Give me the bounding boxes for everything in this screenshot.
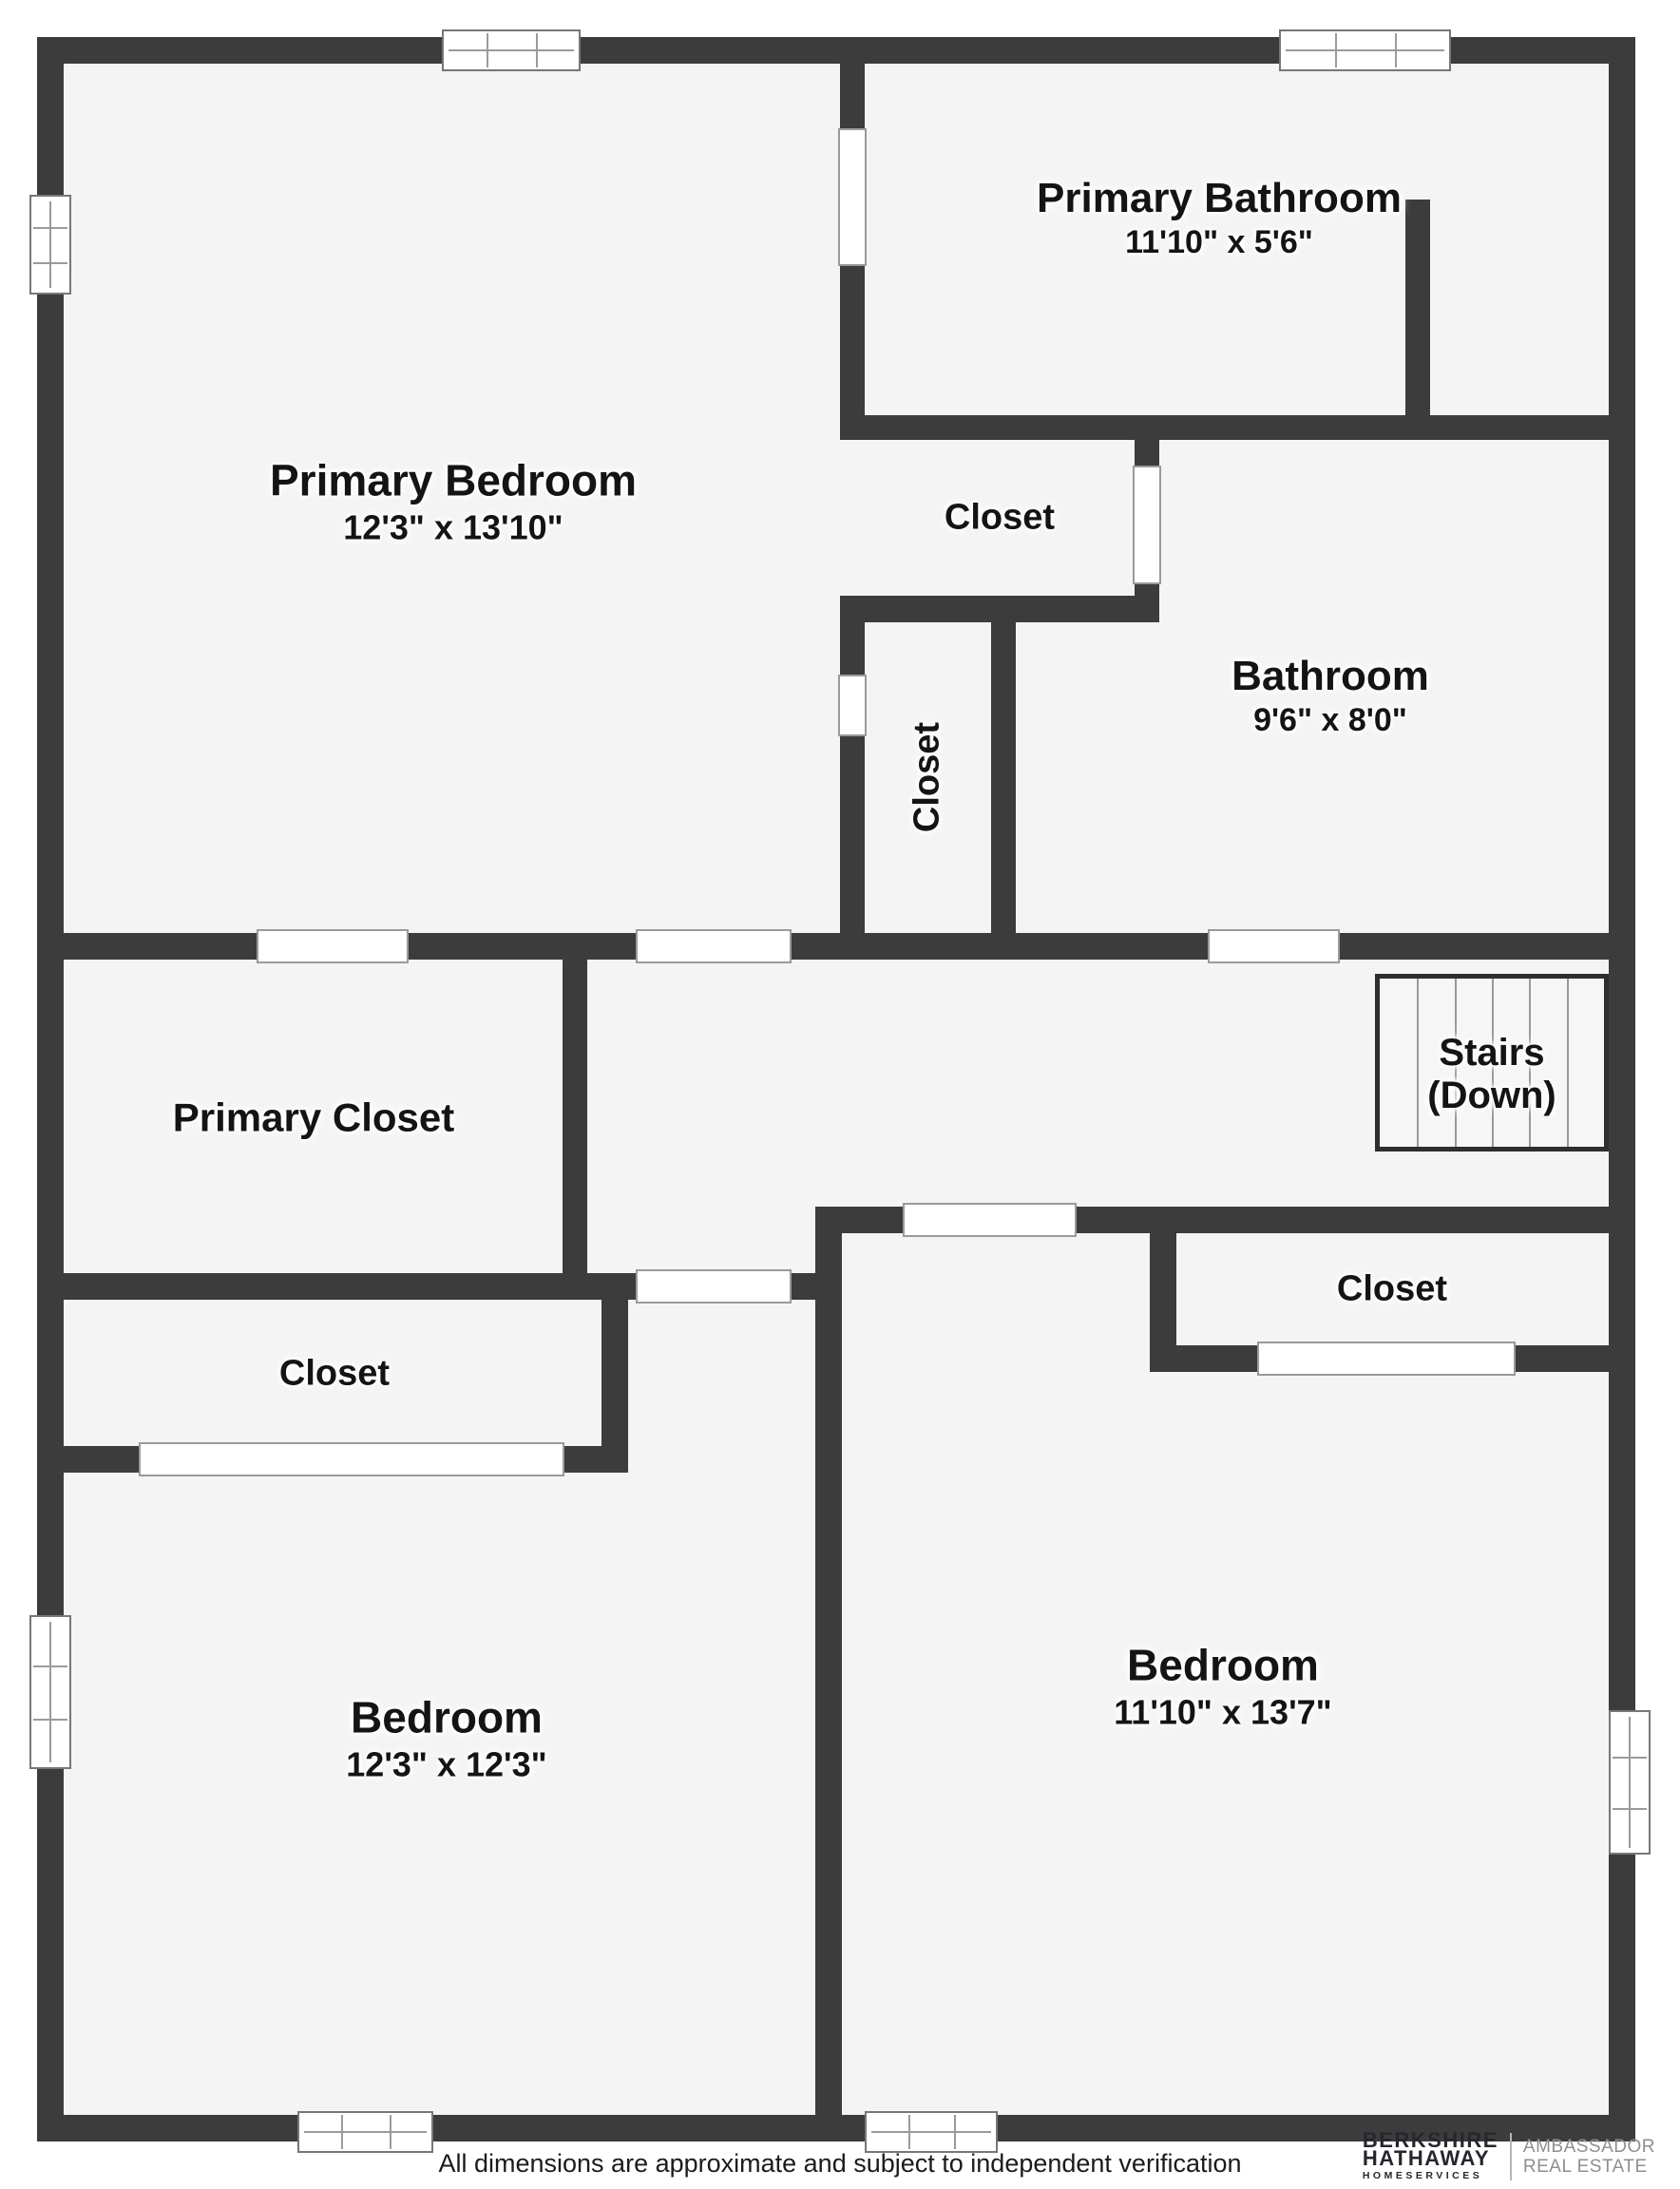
room-label-closet: Closet — [945, 498, 1055, 539]
wall-segment — [64, 1273, 636, 1300]
door-opening — [1257, 1342, 1516, 1376]
door-opening — [1133, 466, 1161, 584]
window-midline — [1629, 1717, 1631, 1848]
wall-segment — [1135, 440, 1159, 466]
door-opening — [1208, 929, 1340, 963]
room-label-primary-bathroom: Primary Bathroom11'10" x 5'6" — [1037, 175, 1402, 260]
brand-name-line2: HATHAWAY — [1363, 2149, 1499, 2167]
window — [1609, 1710, 1651, 1855]
floorplan: Primary Bedroom12'3" x 13'10"Primary Bat… — [0, 0, 1680, 2189]
room-label-primary-closet: Primary Closet — [173, 1094, 454, 1139]
window-tick — [1395, 33, 1397, 67]
stair-tread — [1417, 979, 1419, 1147]
room-label-bedroom: Bedroom11'10" x 13'7" — [1114, 1642, 1331, 1732]
wall-segment — [840, 415, 1609, 440]
window-midline — [449, 49, 574, 51]
wall-segment — [840, 64, 865, 128]
brand-right-line2: REAL ESTATE — [1523, 2157, 1655, 2177]
door-opening — [838, 675, 867, 736]
brand-name-line3: HOMESERVICES — [1363, 2170, 1499, 2181]
wall-segment — [815, 1207, 842, 2115]
room-label-primary-bedroom: Primary Bedroom12'3" x 13'10" — [270, 457, 637, 547]
room-name-line2: (Down) — [1427, 1075, 1556, 1117]
room-label-closet: Closet — [279, 1354, 390, 1395]
room-name: Closet — [945, 498, 1055, 539]
wall-segment — [840, 622, 865, 675]
window-midline — [49, 1622, 51, 1762]
window-midline — [871, 2131, 991, 2133]
window — [29, 1615, 71, 1769]
room-dims: 12'3" x 13'10" — [270, 508, 637, 546]
door-opening — [636, 929, 792, 963]
room-name: Bedroom — [1114, 1642, 1331, 1691]
logo-divider — [1510, 2133, 1512, 2180]
window-tick — [33, 1666, 67, 1667]
wall-segment — [840, 736, 865, 960]
wall-segment — [1340, 933, 1609, 960]
wall-segment — [64, 933, 257, 960]
room-name: Bedroom — [346, 1694, 546, 1743]
window-tick — [390, 2115, 391, 2149]
window-tick — [1613, 1757, 1647, 1759]
floorplan-page: Primary Bedroom12'3" x 13'10"Primary Bat… — [0, 0, 1680, 2189]
brand-logo-right: AMBASSADOR REAL ESTATE — [1523, 2137, 1655, 2177]
window-midline — [1286, 49, 1444, 51]
wall-segment — [1077, 1207, 1609, 1233]
door-opening — [257, 929, 409, 963]
brand-logo-left: BERKSHIRE HATHAWAY HOMESERVICES — [1363, 2131, 1499, 2181]
room-dims: 11'10" x 13'7" — [1114, 1693, 1331, 1731]
window-tick — [536, 33, 538, 67]
door-opening — [903, 1203, 1077, 1237]
room-name: Primary Bedroom — [270, 457, 637, 506]
wall-segment — [409, 933, 636, 960]
window-tick — [908, 2115, 910, 2149]
stair-tread — [1567, 979, 1569, 1147]
window-tick — [341, 2115, 343, 2149]
wall-segment — [564, 1446, 628, 1473]
room-name: Closet — [279, 1354, 390, 1395]
wall-segment — [563, 960, 587, 1300]
window-tick — [954, 2115, 956, 2149]
window — [865, 2111, 998, 2153]
window — [442, 29, 581, 71]
room-label-bathroom: Bathroom9'6" x 8'0" — [1231, 653, 1429, 738]
window — [1279, 29, 1451, 71]
window — [29, 195, 71, 295]
wall-segment — [840, 596, 1159, 622]
window-tick — [487, 33, 488, 67]
room-name: Primary Closet — [173, 1094, 454, 1139]
window-tick — [33, 262, 67, 264]
window-midline — [304, 2131, 427, 2133]
window-tick — [1335, 33, 1337, 67]
wall-segment — [840, 266, 865, 440]
door-opening — [139, 1442, 564, 1476]
window-midline — [49, 201, 51, 288]
brand-logo: BERKSHIRE HATHAWAY HOMESERVICES AMBASSAD… — [1363, 2131, 1655, 2181]
room-name: Stairs — [1427, 1032, 1556, 1075]
room-label-bedroom: Bedroom12'3" x 12'3" — [346, 1694, 546, 1784]
window-tick — [33, 1719, 67, 1721]
room-dims: 9'6" x 8'0" — [1231, 702, 1429, 738]
door-opening — [838, 128, 867, 266]
room-dims: 12'3" x 12'3" — [346, 1745, 546, 1783]
window-tick — [33, 227, 67, 229]
wall-segment — [991, 622, 1016, 960]
room-label-closet: Closet — [907, 722, 948, 832]
window-tick — [1613, 1808, 1647, 1810]
room-name: Bathroom — [1231, 653, 1429, 699]
room-name: Closet — [1337, 1269, 1447, 1310]
room-dims: 11'10" x 5'6" — [1037, 224, 1402, 260]
wall-segment — [792, 933, 1208, 960]
door-opening — [636, 1269, 792, 1304]
wall-segment — [1150, 1345, 1257, 1372]
wall-segment — [1516, 1345, 1609, 1372]
room-name: Primary Bathroom — [1037, 175, 1402, 221]
wall-segment — [1405, 200, 1430, 415]
room-name: Closet — [907, 722, 948, 832]
wall-segment — [37, 37, 64, 2141]
wall-segment — [64, 1446, 139, 1473]
room-label-stairs: Stairs(Down) — [1427, 1032, 1556, 1117]
room-label-closet: Closet — [1337, 1269, 1447, 1310]
window — [297, 2111, 433, 2153]
brand-right-line1: AMBASSADOR — [1523, 2137, 1655, 2157]
